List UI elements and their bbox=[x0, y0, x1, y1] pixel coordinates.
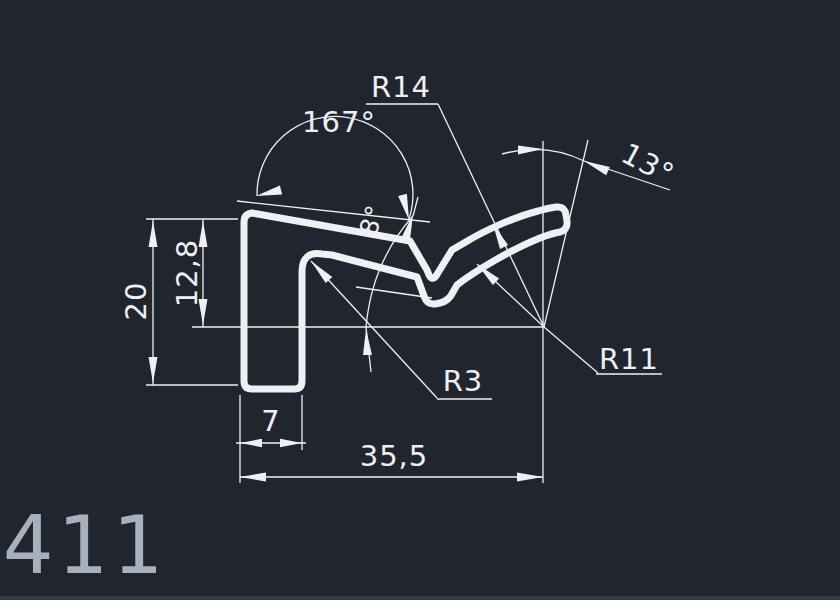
label-radius-r3: R3 bbox=[443, 364, 484, 398]
arrow-35-5-left bbox=[240, 473, 266, 482]
dim-arc-8-tail-top bbox=[413, 197, 418, 216]
construction-lines bbox=[146, 140, 588, 483]
cad-drawing: 167° R14 13° 8° 20 12,8 7 35,5 R3 R11 41… bbox=[0, 0, 840, 600]
arrow-20-top bbox=[149, 221, 158, 247]
label-width-35-5: 35,5 bbox=[360, 439, 429, 473]
leader-r11-tail bbox=[544, 327, 598, 373]
label-angle-13: 13° bbox=[616, 136, 680, 192]
arrow-13-right bbox=[584, 161, 610, 175]
arrow-8-bottom bbox=[363, 329, 372, 355]
arrow-20-bottom bbox=[149, 357, 158, 383]
arrow-167-right bbox=[398, 194, 409, 220]
arrow-35-5-right bbox=[517, 473, 543, 482]
dimension-lines bbox=[149, 104, 671, 482]
arrow-7-left bbox=[240, 439, 262, 447]
label-width-7: 7 bbox=[261, 404, 280, 438]
label-height-20: 20 bbox=[119, 282, 153, 321]
arrow-r3 bbox=[311, 261, 332, 283]
arrow-167-left bbox=[256, 186, 282, 196]
part-number: 411 bbox=[3, 499, 168, 592]
label-radius-r11: R11 bbox=[599, 342, 659, 376]
label-radius-r14: R14 bbox=[371, 70, 431, 104]
label-angle-167: 167° bbox=[302, 105, 376, 139]
label-height-12-8: 12,8 bbox=[170, 239, 204, 308]
cad-drawing-canvas: 167° R14 13° 8° 20 12,8 7 35,5 R3 R11 41… bbox=[0, 0, 840, 600]
window-bottom-edge bbox=[0, 596, 840, 600]
arrow-7-right bbox=[280, 439, 302, 447]
